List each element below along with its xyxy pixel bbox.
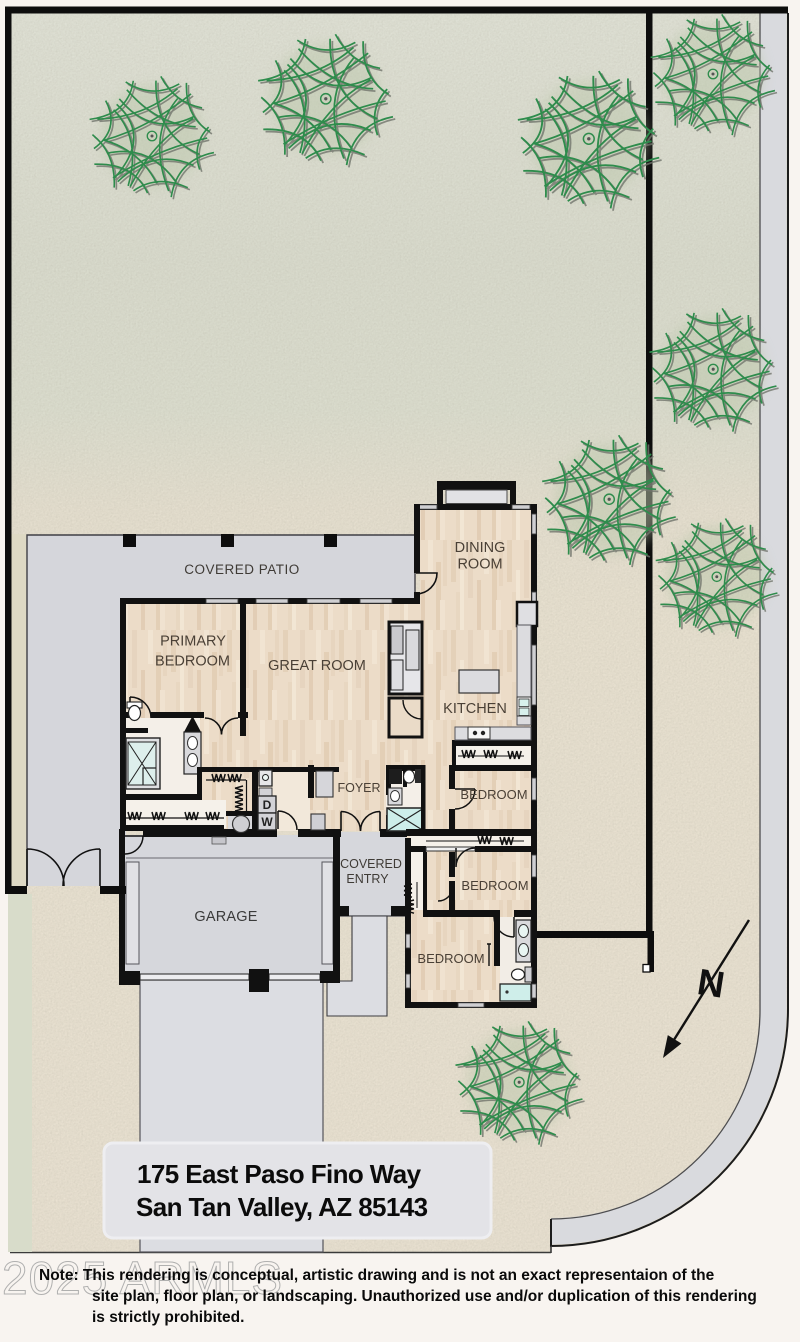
svg-text:D: D (263, 798, 272, 812)
svg-text:ROOM: ROOM (457, 557, 502, 573)
svg-text:175 East Paso Fino Way: 175 East Paso Fino Way (137, 1159, 422, 1189)
svg-text:site plan, floor plan, or land: site plan, floor plan, or landscaping. U… (92, 1288, 757, 1305)
svg-text:GREAT ROOM: GREAT ROOM (268, 658, 366, 674)
svg-text:W: W (261, 815, 273, 829)
svg-text:BEDROOM: BEDROOM (155, 654, 230, 670)
svg-text:San Tan Valley, AZ 85143: San Tan Valley, AZ 85143 (136, 1192, 428, 1222)
svg-text:COVERED PATIO: COVERED PATIO (184, 562, 300, 577)
svg-text:Note: This rendering is conce: Note: This rendering is conceptual, arti… (39, 1267, 715, 1284)
svg-text:BEDROOM: BEDROOM (461, 878, 528, 893)
svg-text:GARAGE: GARAGE (194, 909, 257, 925)
svg-text:ENTRY: ENTRY (346, 872, 389, 886)
svg-text:KITCHEN: KITCHEN (443, 701, 507, 717)
svg-text:BEDROOM: BEDROOM (417, 951, 484, 966)
svg-text:is strictly prohibited.: is strictly prohibited. (92, 1309, 244, 1326)
svg-text:BEDROOM: BEDROOM (460, 787, 527, 802)
svg-text:PRIMARY: PRIMARY (160, 634, 226, 650)
svg-text:DINING: DINING (455, 540, 506, 556)
svg-text:COVERED: COVERED (340, 857, 402, 871)
svg-text:FOYER: FOYER (337, 781, 380, 795)
